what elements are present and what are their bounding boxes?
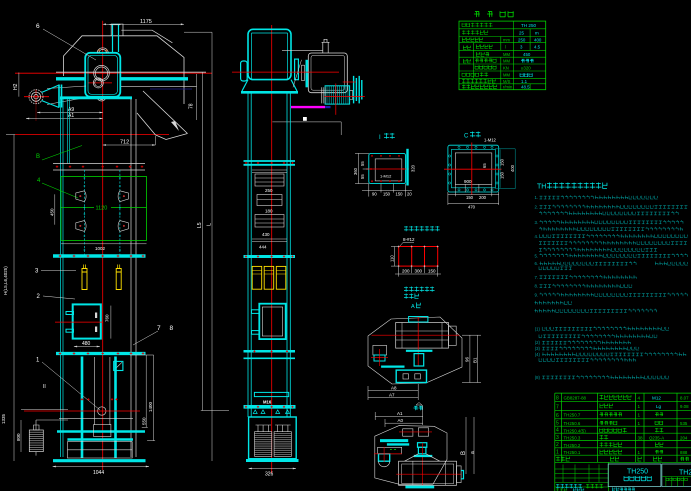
- svg-text:A1: A1: [68, 113, 74, 119]
- svg-text:L: L: [207, 223, 213, 226]
- svg-text:(1): (1): [535, 326, 541, 331]
- svg-text:1.: 1.: [535, 195, 539, 200]
- svg-text:TH: TH: [537, 184, 546, 191]
- svg-text:1400: 1400: [148, 401, 153, 412]
- svg-text:TH250.7: TH250.7: [564, 413, 581, 418]
- svg-text:96: 96: [465, 356, 470, 362]
- svg-text:TH250.2: TH250.2: [564, 443, 581, 448]
- svg-text:TH2: TH2: [679, 470, 691, 477]
- svg-text:180: 180: [265, 209, 273, 214]
- svg-text:MM: MM: [503, 52, 510, 57]
- svg-text:38: 38: [638, 436, 644, 441]
- svg-text:TH250: TH250: [627, 469, 648, 476]
- svg-text:A7: A7: [389, 392, 395, 397]
- svg-text:65: 65: [482, 163, 487, 168]
- svg-text:KN: KN: [503, 65, 509, 70]
- svg-text:m: m: [535, 31, 539, 36]
- svg-text:7.: 7.: [535, 275, 539, 280]
- svg-text:9.08: 9.08: [680, 404, 689, 409]
- svg-text:1-M12: 1-M12: [484, 138, 497, 143]
- svg-text:450: 450: [523, 52, 531, 57]
- svg-text:A: A: [411, 304, 415, 310]
- svg-text:8: 8: [556, 396, 559, 402]
- svg-text:l: l: [505, 44, 506, 49]
- svg-text:6: 6: [556, 413, 559, 419]
- svg-text:4.: 4.: [535, 234, 539, 239]
- svg-text:(8): (8): [535, 375, 541, 380]
- svg-text:480: 480: [82, 341, 91, 347]
- svg-text:A8: A8: [391, 386, 397, 391]
- svg-text:360: 360: [353, 167, 358, 175]
- svg-text:250: 250: [518, 38, 526, 43]
- svg-text:TH250.3: TH250.3: [564, 436, 581, 441]
- svg-text:430: 430: [262, 232, 270, 237]
- svg-text:1-M12: 1-M12: [380, 174, 392, 179]
- svg-text:7: 7: [556, 404, 559, 410]
- svg-text:450: 450: [50, 208, 55, 216]
- svg-text:1044: 1044: [93, 470, 104, 476]
- svg-text:8.: 8.: [535, 284, 539, 289]
- svg-text:A9: A9: [68, 107, 74, 113]
- svg-text:B: B: [36, 154, 40, 160]
- svg-text:550: 550: [142, 417, 147, 425]
- svg-text:1002: 1002: [95, 246, 106, 251]
- svg-text:M16: M16: [263, 400, 272, 405]
- svg-text:204: 204: [680, 435, 688, 440]
- svg-text:B1: B1: [473, 357, 478, 363]
- svg-text:GB8287-88: GB8287-88: [564, 396, 587, 401]
- svg-text:H2: H2: [13, 83, 19, 90]
- svg-text:320: 320: [411, 164, 416, 172]
- svg-text:M12: M12: [652, 395, 661, 400]
- svg-text:8: 8: [170, 325, 174, 332]
- svg-text:150: 150: [396, 192, 404, 197]
- svg-text:(2): (2): [535, 340, 541, 345]
- svg-text:48.5: 48.5: [521, 85, 530, 90]
- svg-text:6: 6: [36, 23, 40, 30]
- svg-text:5.: 5.: [535, 253, 539, 258]
- svg-text:mm: mm: [503, 38, 510, 43]
- svg-text:C: C: [464, 134, 469, 140]
- svg-text:B: B: [461, 451, 467, 455]
- svg-text:470: 470: [468, 205, 476, 210]
- svg-text:TH 250: TH 250: [521, 23, 537, 28]
- svg-text:200: 200: [402, 269, 410, 274]
- svg-text:326: 326: [265, 472, 274, 478]
- svg-text:300: 300: [415, 269, 423, 274]
- svg-text:4: 4: [556, 428, 559, 434]
- svg-text:1.1: 1.1: [521, 79, 528, 84]
- svg-text:150: 150: [383, 192, 391, 197]
- svg-text:150: 150: [500, 158, 505, 166]
- svg-text:3: 3: [556, 435, 559, 441]
- svg-text:712: 712: [120, 140, 129, 146]
- svg-text:20: 20: [407, 192, 412, 197]
- svg-text:78: 78: [189, 103, 195, 109]
- svg-text:150: 150: [428, 269, 436, 274]
- svg-text:250: 250: [265, 188, 273, 193]
- svg-text:6.: 6.: [535, 261, 539, 266]
- svg-text:760: 760: [105, 314, 110, 322]
- svg-text:MM: MM: [503, 59, 510, 64]
- svg-text:800: 800: [16, 433, 21, 441]
- svg-text:535: 535: [680, 421, 688, 426]
- svg-text:5: 5: [556, 420, 559, 426]
- svg-text:(3): (3): [535, 346, 541, 351]
- svg-text:r/min: r/min: [503, 85, 513, 90]
- svg-text:II: II: [43, 384, 46, 390]
- svg-text:400: 400: [534, 38, 542, 43]
- svg-text:4.5: 4.5: [534, 44, 541, 49]
- svg-text:9.: 9.: [535, 293, 539, 298]
- svg-text:200: 200: [479, 195, 487, 200]
- svg-text:L5: L5: [197, 222, 203, 228]
- svg-text:444: 444: [259, 245, 267, 250]
- svg-text:A1: A1: [397, 411, 403, 416]
- svg-text:1: 1: [638, 404, 641, 409]
- svg-text:8.07: 8.07: [680, 395, 689, 400]
- svg-text:H(L5,L6,4025): H(L5,L6,4025): [3, 266, 8, 295]
- svg-text:55: 55: [360, 174, 365, 179]
- svg-text:1120: 1120: [96, 206, 108, 212]
- svg-text:Lg: Lg: [656, 404, 662, 409]
- svg-text:1: 1: [638, 413, 641, 418]
- svg-text:888: 888: [680, 450, 688, 455]
- svg-text:8-#12: 8-#12: [403, 237, 415, 242]
- svg-text:M/S: M/S: [503, 79, 511, 84]
- svg-text:150: 150: [466, 195, 474, 200]
- svg-text:3.: 3.: [535, 220, 539, 225]
- svg-text:A0: A0: [398, 418, 404, 423]
- svg-text:≥320: ≥320: [521, 65, 531, 70]
- svg-text:2: 2: [556, 442, 559, 448]
- svg-text:4: 4: [638, 396, 641, 401]
- svg-text:90: 90: [372, 192, 377, 197]
- svg-text:1: 1: [638, 450, 641, 455]
- svg-text:1: 1: [556, 450, 559, 456]
- svg-text:150: 150: [500, 171, 505, 179]
- svg-text:TH250.6: TH250.6: [564, 421, 581, 426]
- svg-text:TH250.4(5): TH250.4(5): [564, 429, 587, 434]
- svg-text:1175: 1175: [140, 19, 152, 25]
- svg-text:a: a: [470, 451, 476, 454]
- svg-text:400: 400: [510, 164, 515, 172]
- svg-text:1: 1: [638, 421, 641, 426]
- svg-text:TH250.1: TH250.1: [564, 450, 581, 455]
- svg-text:1335: 1335: [1, 413, 6, 424]
- svg-text:MM: MM: [503, 73, 510, 78]
- svg-text:2.: 2.: [535, 205, 539, 210]
- svg-text:55: 55: [360, 161, 365, 166]
- svg-text:Q235-A: Q235-A: [649, 435, 664, 440]
- svg-text:900: 900: [464, 179, 472, 184]
- svg-text:25: 25: [519, 31, 524, 36]
- svg-text:110: 110: [390, 255, 395, 262]
- svg-text:(4): (4): [535, 352, 541, 357]
